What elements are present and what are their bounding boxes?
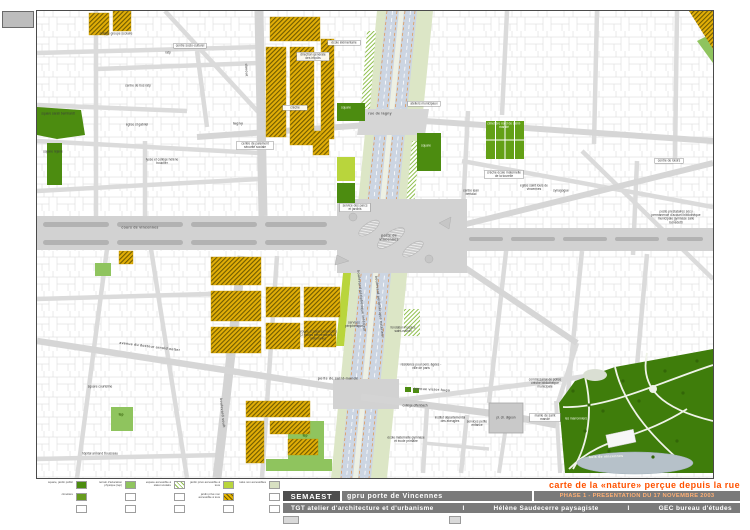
lake xyxy=(577,452,693,474)
legend-item: jardin privé non accessible à tous xyxy=(187,492,236,504)
legend-swatch xyxy=(76,481,87,489)
legend-swatch xyxy=(76,505,87,513)
legend-item xyxy=(138,504,187,516)
legend-label: talus non accessibles xyxy=(234,481,266,484)
legend-label: jardin privé non accessible à tous xyxy=(188,493,220,499)
legend-label: cimetière xyxy=(41,493,73,496)
legend-item xyxy=(89,492,138,504)
legend-label: square, jardin public xyxy=(41,481,73,484)
separator: I xyxy=(628,505,630,512)
phase-badge: PHASE 1 - PRESENTATION DU 17 NOVEMBRE 20… xyxy=(534,491,740,501)
legend-swatch xyxy=(174,493,185,501)
team-bar: TGT atelier d'architecture et d'urbanism… xyxy=(283,503,740,513)
legend-swatch xyxy=(269,493,280,501)
map-canvas xyxy=(37,11,713,478)
team-engineer: GEC bureau d'études xyxy=(659,505,732,512)
client-badge: SEMAEST xyxy=(283,491,340,501)
separator: I xyxy=(463,505,465,512)
legend-item: jardin privé accessible à tous xyxy=(187,480,236,492)
legend-item xyxy=(233,492,282,504)
scale-box xyxy=(449,516,461,524)
legend-swatch xyxy=(269,505,280,513)
legend-item xyxy=(233,504,282,516)
legend-item: cimetière xyxy=(40,492,89,504)
legend-label: terrain d'éducation physique (tep) xyxy=(90,481,122,487)
legend-label: espace accessible à statut scolaire xyxy=(139,481,171,487)
place-charles-digeon xyxy=(489,403,523,433)
client-name: SEMAEST xyxy=(291,492,333,501)
sheet-title: carte de la «nature» perçue depuis la ru… xyxy=(549,480,740,490)
legend-item xyxy=(138,492,187,504)
project-name: gpru porte de Vincennes xyxy=(347,493,443,500)
legend-swatch xyxy=(174,481,185,489)
team-landscape: Hélène Saudecerre paysagiste xyxy=(494,505,599,512)
team-architect: TGT atelier d'architecture et d'urbanism… xyxy=(291,505,434,512)
legend-swatch xyxy=(125,505,136,513)
legend-swatch xyxy=(76,493,87,501)
legend-item xyxy=(89,504,138,516)
map-sheet: square sarah bernhardt square réjane égl… xyxy=(0,0,750,530)
phase-text: PHASE 1 - PRESENTATION DU 17 NOVEMBRE 20… xyxy=(560,493,715,499)
legend-item: espace accessible à statut scolaire xyxy=(138,480,187,492)
scale-box xyxy=(283,516,299,524)
legend-item: terrain d'éducation physique (tep) xyxy=(89,480,138,492)
legend-swatch xyxy=(269,481,280,489)
legend-item: talus non accessibles xyxy=(233,480,282,492)
legend-swatch xyxy=(125,493,136,501)
margin-stamp-box xyxy=(2,11,34,28)
map-frame xyxy=(36,10,714,479)
legend-item: square, jardin public xyxy=(40,480,89,492)
legend-item xyxy=(40,504,89,516)
cimetiere-nord xyxy=(486,121,524,159)
legend-item xyxy=(187,504,236,516)
legend-swatch xyxy=(174,505,185,513)
legend-label: jardin privé accessible à tous xyxy=(188,481,220,487)
legend-swatch xyxy=(125,481,136,489)
project-badge: gpru porte de Vincennes xyxy=(342,491,532,501)
